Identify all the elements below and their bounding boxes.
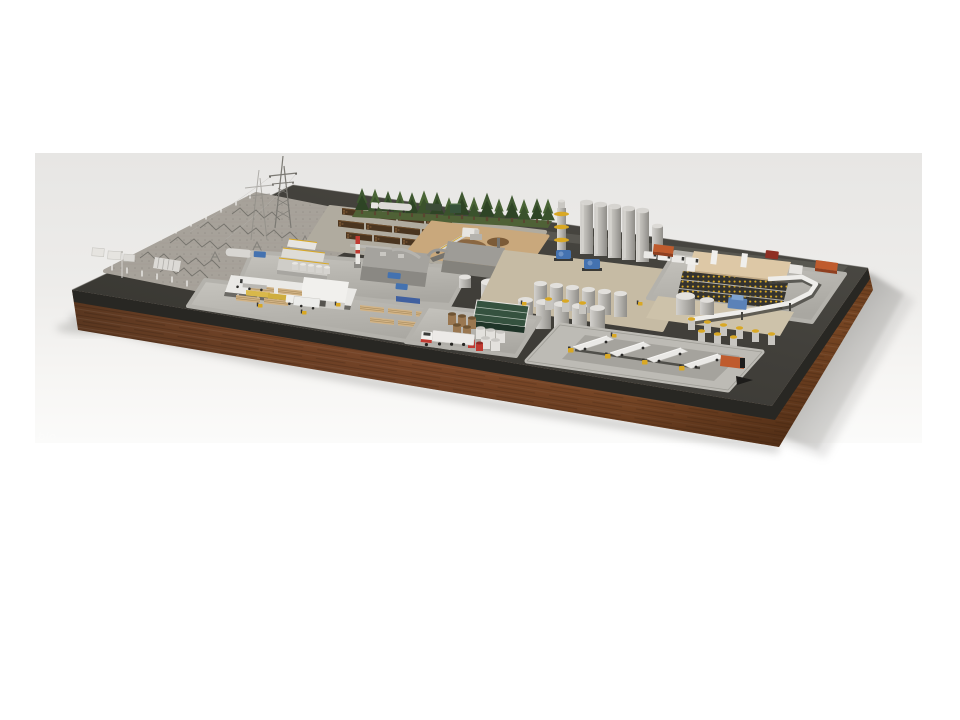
green-truck (426, 203, 442, 211)
boiler-house (360, 247, 431, 287)
chip-hopper (450, 204, 461, 213)
page: bio (0, 0, 960, 720)
watermark: bio (38, 430, 56, 443)
red-container-roof (765, 250, 779, 260)
industrial-plant-photo: bio (0, 0, 960, 720)
